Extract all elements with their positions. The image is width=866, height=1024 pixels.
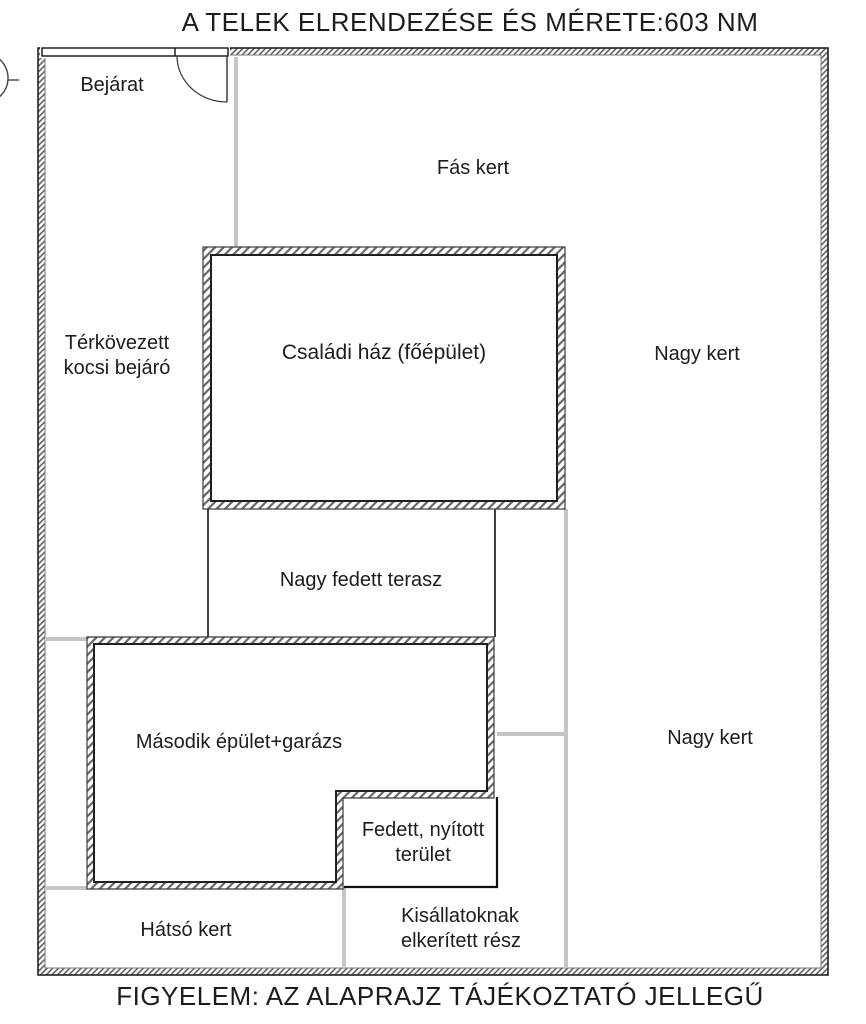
covered-open-area [344, 797, 497, 887]
label-wooded-garden: Fás kert [437, 157, 510, 179]
label-big-garden-lower: Nagy kert [667, 727, 753, 749]
main-house-outer-line [203, 247, 565, 509]
site-plan-page: A TELEK ELRENDEZÉSE ÉS MÉRETE:603 NM [0, 0, 866, 1024]
label-back-garden: Hátsó kert [140, 919, 232, 941]
label-main-house: Családi ház (főépület) [282, 341, 486, 364]
main-house-wall-hatch [203, 247, 565, 509]
label-second-building: Második épület+garázs [136, 731, 342, 753]
door-swing-arc-icon [177, 56, 227, 102]
label-paved-driveway-line2: kocsi bejáró [64, 357, 171, 379]
label-pets-area-line2: elkerített rész [401, 930, 521, 952]
main-house [203, 247, 565, 509]
edge-circle-icon [0, 53, 8, 103]
label-covered-open-area-line1: Fedett, nyított [362, 819, 485, 841]
label-paved-driveway-line1: Térkövezett [65, 332, 170, 354]
site-plan-drawing: A TELEK ELRENDEZÉSE ÉS MÉRETE:603 NM [0, 0, 866, 1024]
label-covered-open-area-line2: terület [395, 844, 451, 866]
footer-warning: FIGYELEM: AZ ALAPRAJZ TÁJÉKOZTATÓ JELLEG… [116, 981, 764, 1011]
gate-bar [42, 48, 228, 56]
page-title: A TELEK ELRENDEZÉSE ÉS MÉRETE:603 NM [182, 7, 759, 37]
label-big-garden-upper: Nagy kert [654, 343, 740, 365]
edge-symbol [0, 53, 19, 103]
main-house-inner-line [211, 255, 557, 501]
label-entrance: Bejárat [80, 74, 144, 96]
label-covered-terrace: Nagy fedett terasz [280, 569, 442, 591]
label-pets-area-line1: Kisállatoknak [401, 905, 520, 927]
